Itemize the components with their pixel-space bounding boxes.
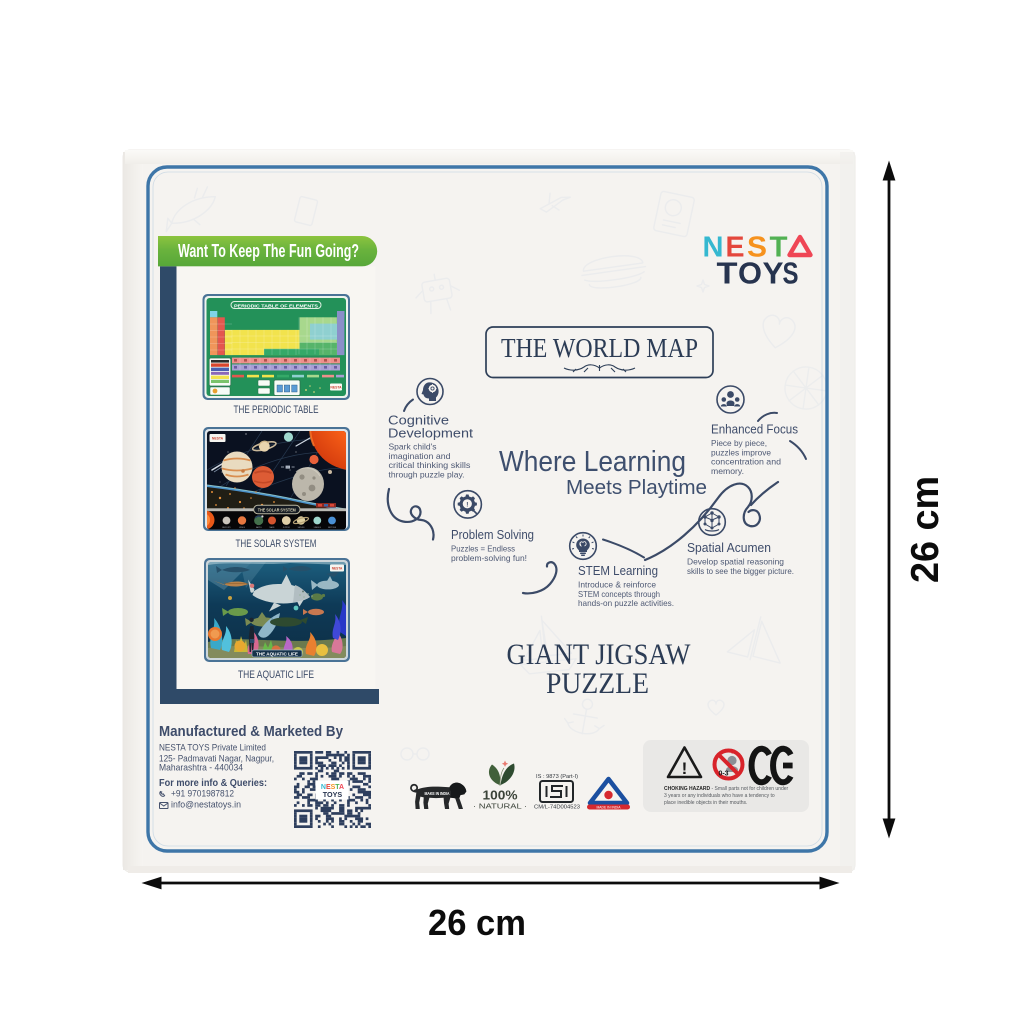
svg-text:hands-on puzzle activities.: hands-on puzzle activities. (578, 598, 674, 608)
svg-text:Y: Y (763, 256, 784, 291)
svg-text:NESTA: NESTA (330, 386, 342, 390)
svg-text:Problem Solving: Problem Solving (451, 527, 534, 542)
svg-text:Enhanced Focus: Enhanced Focus (711, 422, 798, 437)
svg-text:MAKE IN INDIA: MAKE IN INDIA (425, 791, 451, 796)
svg-text:26 cm: 26 cm (904, 476, 947, 583)
svg-text:3 years or any individuals who: 3 years or any individuals who have a te… (664, 793, 775, 799)
svg-text:NEPTUNE: NEPTUNE (328, 527, 337, 529)
svg-text:O: O (738, 256, 762, 291)
svg-text:skills to see the bigger pictu: skills to see the bigger picture. (687, 566, 794, 576)
svg-text:THE SOLAR SYSTEM: THE SOLAR SYSTEM (236, 538, 317, 550)
svg-text:Maharashtra - 440034: Maharashtra - 440034 (159, 763, 243, 773)
svg-text:!: ! (466, 501, 468, 508)
svg-text:NESTA TOYS Private Limited: NESTA TOYS Private Limited (159, 743, 266, 753)
svg-text:THE AQUATIC LIFE: THE AQUATIC LIFE (256, 651, 298, 656)
svg-text:MARS: MARS (270, 526, 276, 529)
svg-text:TOYS: TOYS (323, 790, 343, 799)
svg-text:EARTH: EARTH (256, 526, 262, 529)
svg-text:MADE IN INDIA: MADE IN INDIA (596, 806, 621, 810)
svg-text:Meets Playtime: Meets Playtime (566, 476, 707, 499)
svg-text:PERIODIC TABLE OF ELEMENTS: PERIODIC TABLE OF ELEMENTS (234, 303, 318, 308)
svg-text:Development: Development (388, 426, 473, 441)
svg-text:Manufactured & Marketed By: Manufactured & Marketed By (159, 724, 343, 740)
svg-text:through puzzle play.: through puzzle play. (389, 469, 465, 479)
svg-text:PUZZLE: PUZZLE (546, 667, 649, 700)
svg-text:· NATURAL ·: · NATURAL · (473, 802, 527, 811)
svg-text:SATURN: SATURN (298, 526, 306, 529)
svg-text:26 cm: 26 cm (428, 902, 526, 943)
svg-text:THE PERIODIC TABLE: THE PERIODIC TABLE (234, 404, 319, 416)
svg-text:Want To Keep The Fun Going?: Want To Keep The Fun Going? (178, 241, 359, 261)
svg-text:VENUS: VENUS (239, 527, 246, 529)
svg-text:For more info & Queries:: For more info & Queries: (159, 777, 267, 789)
svg-text:MERCURY: MERCURY (222, 527, 231, 529)
svg-text:NESTA: NESTA (332, 567, 343, 571)
svg-text:NESTA: NESTA (212, 437, 224, 441)
svg-text:THE AQUATIC LIFE: THE AQUATIC LIFE (238, 669, 314, 681)
svg-text:info@nestatoys.in: info@nestatoys.in (171, 800, 241, 810)
svg-text:100%: 100% (483, 789, 518, 803)
svg-text:!: ! (682, 759, 688, 778)
svg-text:CHOKING HAZARD - Small parts n: CHOKING HAZARD - Small parts not for chi… (664, 786, 789, 792)
svg-text:THE SOLAR SYSTEM: THE SOLAR SYSTEM (258, 507, 296, 512)
svg-text:Where Learning: Where Learning (499, 446, 686, 478)
svg-text:place inedible objects in thei: place inedible objects in their mouths. (664, 800, 747, 806)
svg-text:0-3: 0-3 (718, 771, 728, 778)
svg-text:+91 9701987812: +91 9701987812 (171, 789, 234, 799)
svg-text:THE WORLD MAP: THE WORLD MAP (501, 333, 698, 363)
svg-text:URANUS: URANUS (314, 526, 322, 529)
svg-text:CM/L-74D004523: CM/L-74D004523 (534, 805, 580, 811)
svg-text:IS : 9873 (Part-I): IS : 9873 (Part-I) (536, 774, 578, 780)
svg-text:S: S (783, 256, 799, 291)
svg-text:JUPITER: JUPITER (283, 527, 291, 529)
svg-text:problem-solving fun!: problem-solving fun! (451, 553, 527, 563)
svg-text:T: T (717, 256, 738, 291)
svg-text:Spatial Acumen: Spatial Acumen (687, 540, 771, 555)
svg-text:memory.: memory. (711, 466, 744, 476)
svg-text:STEM Learning: STEM Learning (578, 563, 658, 578)
